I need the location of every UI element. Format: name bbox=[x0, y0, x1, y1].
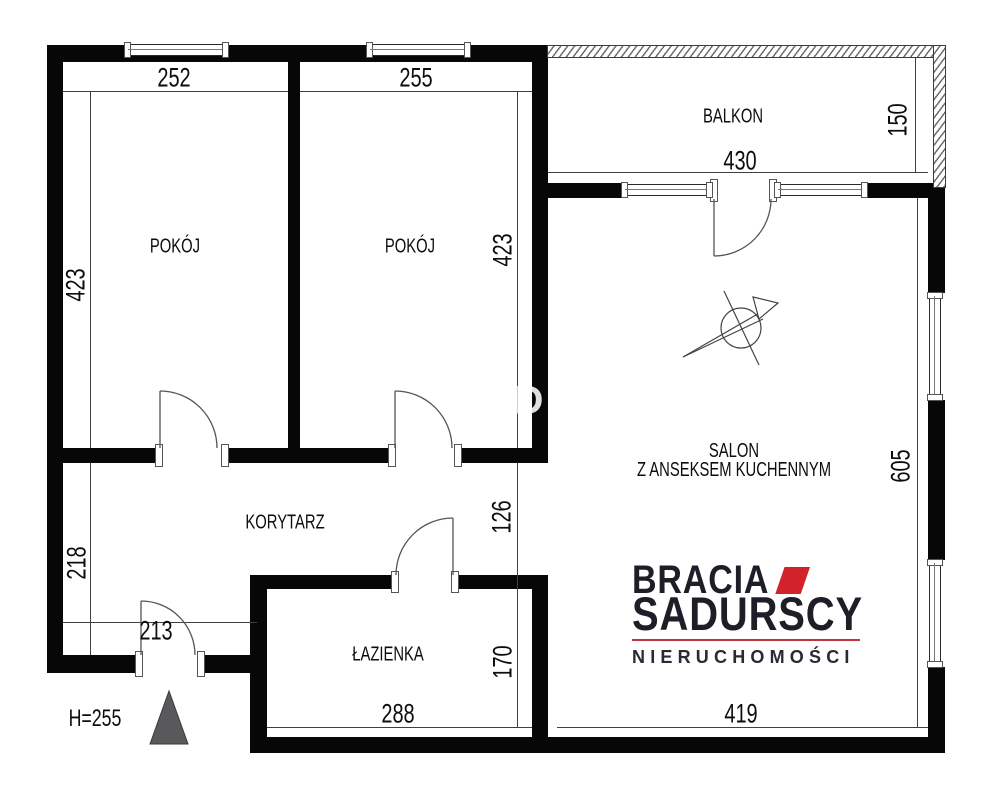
window-salon-right-upper bbox=[929, 293, 941, 400]
floor-plan: 252 255 423 423 POKÓJ POKÓJ BALKON 430 1… bbox=[0, 0, 991, 800]
watermark-letter: D bbox=[515, 379, 544, 424]
wall-balcony-a bbox=[548, 183, 622, 198]
window-salon-balcony-left bbox=[622, 184, 712, 196]
entrance-marker-triangle bbox=[150, 691, 188, 744]
wall-corridor-top-b bbox=[227, 448, 390, 463]
dim-salon-height: 605 bbox=[886, 449, 917, 482]
door-opening-bathroom bbox=[393, 574, 457, 590]
north-arrow-icon bbox=[683, 291, 778, 365]
agency-logo: BRACIA SADURSCY NIERUCHOMOŚCI bbox=[632, 565, 932, 667]
room-label-korytarz: KORYTARZ bbox=[245, 512, 324, 535]
window-salon-balcony-right bbox=[775, 184, 867, 196]
window-room2 bbox=[367, 44, 470, 56]
dim-corridor-height: 218 bbox=[62, 546, 93, 579]
wall-bathroom-left bbox=[250, 575, 267, 753]
room-label-lazienka: ŁAZIENKA bbox=[352, 644, 424, 667]
window-room1 bbox=[125, 44, 228, 56]
balcony-railing-right bbox=[933, 45, 946, 188]
wall-bottom bbox=[250, 737, 945, 753]
door-swing-room1 bbox=[160, 391, 217, 448]
room-label-balkon: BALKON bbox=[703, 106, 763, 129]
dimension-line bbox=[915, 58, 916, 172]
dim-balcony-depth: 150 bbox=[883, 103, 914, 136]
wall-corridor-top-a bbox=[47, 448, 157, 463]
dim-room1-height: 423 bbox=[61, 268, 92, 301]
room-label-pokoj-1: POKÓJ bbox=[150, 236, 200, 259]
plan-symbols bbox=[0, 0, 991, 800]
door-opening-entrance bbox=[137, 654, 203, 674]
dim-balcony-width: 430 bbox=[723, 146, 756, 177]
room-label-salon: SALON Z ANSEKSEM KUCHENNYM bbox=[637, 442, 831, 480]
dim-room2-width: 255 bbox=[399, 63, 432, 94]
wall-right-a bbox=[928, 183, 945, 293]
dim-corridor-passage: 126 bbox=[487, 500, 518, 533]
wall-corridor-top-c bbox=[460, 448, 548, 463]
door-opening-balcony bbox=[712, 182, 775, 199]
dim-salon-width: 419 bbox=[724, 699, 757, 730]
dim-room1-width: 252 bbox=[157, 63, 190, 94]
balcony-railing-top bbox=[547, 45, 946, 58]
door-swing-balcony bbox=[714, 199, 771, 256]
logo-tagline: NIERUCHOMOŚCI bbox=[632, 647, 855, 668]
wall-between-rooms bbox=[288, 45, 300, 463]
logo-divider-line bbox=[632, 639, 860, 641]
dim-corridor-entry: 213 bbox=[139, 616, 172, 647]
wall-corridor-bottom-a bbox=[47, 655, 137, 673]
wall-balcony-b bbox=[867, 183, 928, 198]
wall-right-b bbox=[928, 400, 945, 560]
door-swing-bathroom bbox=[396, 518, 453, 575]
room-label-pokoj-2: POKÓJ bbox=[385, 236, 435, 259]
door-opening-room1 bbox=[157, 447, 227, 464]
dim-bathroom-width: 288 bbox=[381, 699, 414, 730]
logo-line2: SADURSCY bbox=[632, 596, 863, 632]
ceiling-height-label: H=255 bbox=[69, 705, 122, 733]
wall-bathroom-top-a bbox=[250, 575, 393, 589]
dim-room2-height: 423 bbox=[488, 233, 519, 266]
wall-salon-left-lower bbox=[532, 575, 548, 753]
door-opening-room2 bbox=[390, 447, 460, 464]
door-swing-room2 bbox=[395, 391, 452, 448]
wall-right-c bbox=[928, 667, 945, 753]
salon-label-line2: Z ANSEKSEM KUCHENNYM bbox=[637, 461, 831, 480]
dim-bathroom-height: 170 bbox=[488, 645, 519, 678]
